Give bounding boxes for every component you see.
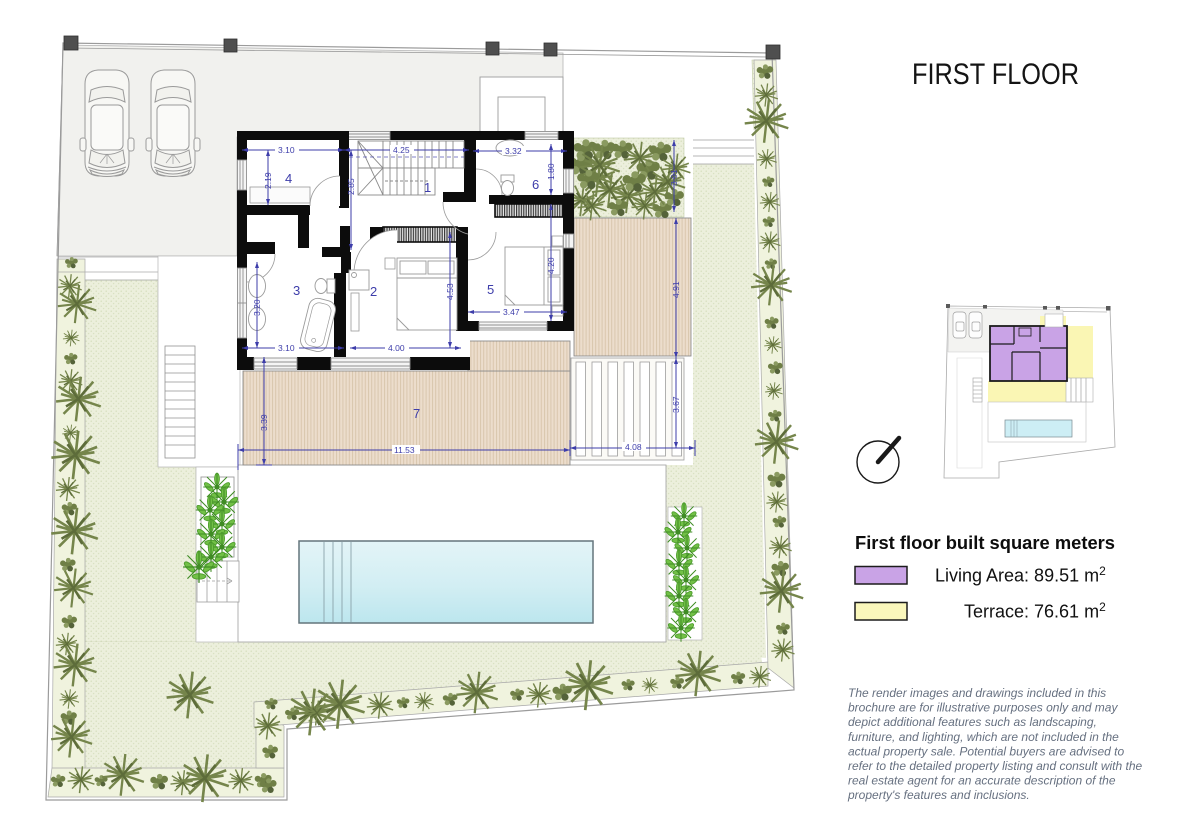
svg-text:4.20: 4.20 — [546, 257, 556, 274]
svg-text:3.01: 3.01 — [669, 169, 679, 186]
svg-text:2.85: 2.85 — [346, 178, 356, 195]
svg-text:5: 5 — [487, 282, 494, 297]
svg-text:Terrace: 76.61 m2: Terrace: 76.61 m2 — [964, 600, 1106, 622]
svg-text:4.00: 4.00 — [388, 343, 405, 353]
svg-text:First floor built square meter: First floor built square meters — [855, 532, 1115, 553]
svg-text:3.10: 3.10 — [278, 343, 295, 353]
svg-text:3: 3 — [293, 283, 300, 298]
svg-text:3.32: 3.32 — [505, 146, 522, 156]
svg-text:11.53: 11.53 — [394, 445, 415, 455]
svg-text:6: 6 — [532, 177, 539, 192]
svg-text:3.47: 3.47 — [503, 307, 520, 317]
svg-text:FIRST FLOOR: FIRST FLOOR — [912, 58, 1079, 91]
svg-text:4: 4 — [285, 171, 292, 186]
svg-text:4.91: 4.91 — [671, 281, 681, 298]
svg-text:1.80: 1.80 — [546, 163, 556, 180]
svg-text:Living Area: 89.51 m2: Living Area: 89.51 m2 — [935, 564, 1106, 586]
svg-text:3.20: 3.20 — [252, 299, 262, 316]
svg-text:4.53: 4.53 — [445, 283, 455, 300]
svg-text:7: 7 — [413, 406, 420, 421]
svg-text:The render images and drawings: The render images and drawings included … — [847, 686, 1142, 802]
svg-text:4.25: 4.25 — [393, 145, 410, 155]
svg-text:2.19: 2.19 — [263, 172, 273, 189]
svg-text:4.08: 4.08 — [625, 442, 642, 452]
svg-text:3.39: 3.39 — [259, 414, 269, 431]
svg-text:2: 2 — [370, 284, 377, 299]
svg-text:1: 1 — [424, 180, 431, 195]
svg-text:3.10: 3.10 — [278, 145, 295, 155]
svg-text:3.67: 3.67 — [671, 396, 681, 413]
